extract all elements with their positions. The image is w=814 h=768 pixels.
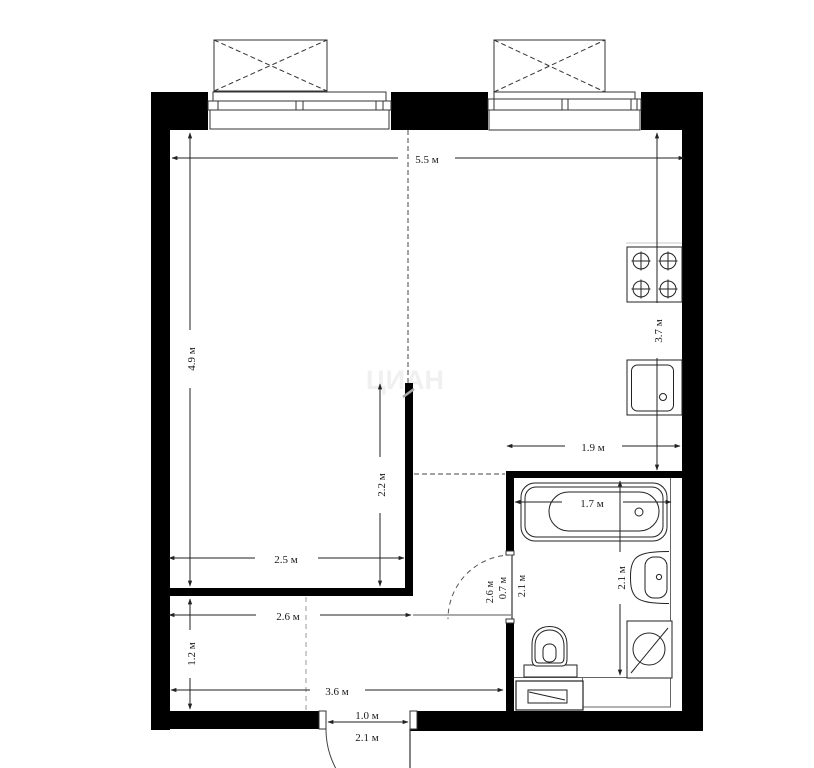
svg-text:1.0 м: 1.0 м [355, 710, 379, 722]
svg-text:4.9 м: 4.9 м [186, 347, 198, 371]
svg-text:2.2 м: 2.2 м [376, 473, 388, 497]
svg-text:3.6 м: 3.6 м [325, 686, 349, 698]
svg-text:1.2 м: 1.2 м [186, 642, 198, 666]
svg-text:2.6 м: 2.6 м [276, 611, 300, 623]
svg-text:1.9 м: 1.9 м [581, 442, 605, 454]
svg-text:2.6 м: 2.6 м [485, 580, 496, 603]
svg-text:0.7 м: 0.7 м [498, 576, 509, 599]
svg-text:2.1 м: 2.1 м [517, 574, 528, 597]
svg-text:2.1 м: 2.1 м [355, 732, 379, 744]
svg-text:1.7 м: 1.7 м [580, 498, 604, 510]
svg-text:2.5 м: 2.5 м [274, 554, 298, 566]
svg-text:2.1 м: 2.1 м [616, 566, 628, 590]
svg-text:5.5 м: 5.5 м [415, 154, 439, 166]
svg-text:3.7 м: 3.7 м [653, 319, 665, 343]
